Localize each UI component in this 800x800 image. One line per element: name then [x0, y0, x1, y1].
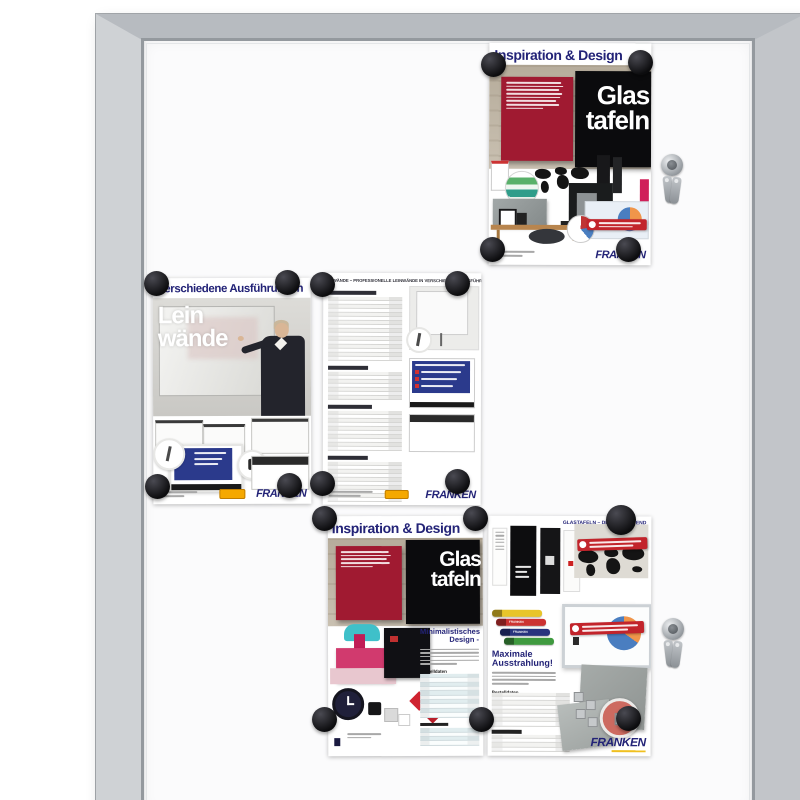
magnet — [445, 271, 470, 296]
map-blob — [571, 167, 589, 179]
map-blob — [557, 175, 569, 189]
beanbag — [529, 229, 565, 244]
magnet-cube — [588, 717, 598, 727]
text-line — [495, 549, 504, 550]
headline-word: wände — [158, 327, 228, 350]
cam-lock — [662, 618, 684, 640]
magnet-cube — [586, 700, 596, 710]
bullet-square — [415, 370, 419, 374]
accessory-table — [492, 735, 570, 752]
magnet — [616, 706, 641, 731]
headline-word: tafeln — [328, 570, 481, 590]
magnet — [606, 505, 636, 535]
magnet — [312, 707, 337, 732]
logo-mark — [334, 738, 340, 746]
marker-cap — [504, 638, 514, 645]
magnet — [481, 52, 506, 77]
table-row — [328, 447, 402, 451]
text-line — [329, 495, 361, 497]
order-table — [420, 674, 479, 718]
planner-strip — [613, 157, 622, 193]
table-row — [420, 741, 479, 746]
banner-text-line — [589, 544, 633, 547]
pole-detail — [166, 446, 172, 461]
text-line — [492, 675, 556, 677]
address-block — [329, 491, 373, 499]
map-blob — [578, 550, 598, 563]
text-line — [495, 538, 504, 539]
price-table — [328, 297, 402, 361]
magnet — [145, 474, 170, 499]
slide-screen — [409, 358, 475, 408]
alert-icon — [572, 625, 579, 632]
notice-board-frame: Inspiration & Design Glas tafeln — [96, 14, 800, 800]
red-chip — [568, 561, 573, 566]
paragraph — [420, 648, 479, 664]
planner-strip-black — [510, 526, 536, 596]
table-header-bar — [328, 366, 368, 370]
magnet — [616, 237, 641, 262]
marker-set: FRANKEN FRANKEN — [492, 610, 554, 648]
text-line — [515, 576, 529, 578]
map-blob — [555, 167, 567, 175]
detail-magnifier — [153, 438, 185, 470]
table-header-bar — [328, 405, 372, 409]
marker-red: FRANKEN — [496, 619, 546, 626]
magnet — [144, 271, 169, 296]
price-table — [328, 411, 402, 451]
poster-headline: Lein wände — [158, 304, 228, 350]
banner-text-line — [589, 540, 641, 543]
table-row — [328, 357, 402, 361]
whiteboard — [562, 604, 652, 668]
screen-photo — [409, 286, 479, 350]
pole-detail — [416, 333, 421, 346]
paragraph — [492, 672, 556, 687]
slide-text-line — [421, 378, 457, 380]
cam-lock — [661, 154, 683, 176]
text-line — [420, 656, 479, 658]
alert-icon — [589, 221, 596, 228]
presenter-head — [275, 323, 289, 338]
magnet — [310, 272, 335, 297]
wall-screen — [251, 418, 309, 454]
poster-headline: Glas tafeln — [489, 83, 650, 134]
picture-frame — [517, 213, 527, 225]
slide-title-line — [415, 364, 465, 366]
presenter-body — [261, 336, 305, 416]
poster-title: Inspiration & Design — [328, 516, 483, 538]
map-blob — [632, 566, 642, 572]
black-square-board — [368, 702, 381, 715]
screen-top-bar — [252, 457, 308, 465]
text-line — [420, 648, 479, 650]
banner-text-line — [582, 628, 628, 631]
slide-text-line — [194, 463, 218, 465]
text-line — [495, 532, 504, 533]
magnet — [277, 473, 302, 498]
keyhole — [667, 160, 677, 170]
magnet — [312, 506, 337, 531]
section-heading: Maximale Ausstrahlung! — [492, 650, 564, 669]
text-line — [329, 491, 373, 493]
map-blob — [606, 558, 620, 574]
text-line — [492, 683, 529, 685]
table-header-bar — [492, 730, 522, 734]
headline-word: tafeln — [489, 108, 650, 134]
red-banner — [570, 621, 644, 635]
section-heading: Minimalistisches Design - — [420, 628, 479, 645]
red-banner — [587, 219, 647, 230]
planner-strip-black — [540, 528, 560, 594]
publisher-mark — [334, 733, 382, 751]
magnet — [469, 707, 494, 732]
text-line — [348, 737, 372, 739]
table-row — [492, 747, 570, 751]
bullet-square — [415, 384, 419, 388]
product-image-column — [409, 286, 477, 452]
bullet-square — [415, 377, 419, 381]
text-line — [492, 679, 556, 681]
wall-clock — [332, 688, 364, 720]
gray-square-board — [384, 708, 398, 722]
magnet — [445, 469, 470, 494]
slide-text-line — [421, 371, 461, 373]
marker-cap — [492, 610, 502, 617]
magnet — [275, 270, 300, 295]
note-tag — [390, 636, 398, 642]
roller-screen — [409, 414, 475, 452]
promo-badge — [219, 489, 245, 499]
text-line — [515, 571, 527, 573]
banner-text-line — [599, 222, 641, 224]
magnet — [310, 471, 335, 496]
alert-icon — [579, 541, 586, 548]
map-blob — [541, 181, 549, 193]
marker-blue: FRANKEN — [500, 629, 550, 636]
screen-top-bar — [252, 419, 308, 422]
screen-top-bar — [410, 415, 474, 422]
marker-label: FRANKEN — [513, 630, 528, 634]
table-header-bar — [328, 291, 376, 295]
text-line — [495, 542, 504, 543]
planner-strip-white — [492, 528, 507, 586]
text-line — [348, 733, 382, 735]
text-line — [420, 663, 457, 665]
franken-logo-block: FRANKEN — [590, 735, 645, 752]
magnet-cube — [574, 692, 584, 702]
magnet — [480, 237, 505, 262]
logo-underline — [612, 750, 646, 752]
banner-text-line — [582, 624, 638, 627]
table-row — [492, 722, 570, 726]
table-header-bar — [328, 456, 368, 460]
marker-cap — [500, 629, 510, 636]
poster-leinwaende-hero: Verschiedene Ausführungen Lein wände — [153, 278, 312, 505]
red-banner — [577, 537, 647, 551]
accessory-table — [420, 728, 479, 746]
table-header-bar — [420, 723, 448, 727]
presenter-hand — [238, 336, 244, 341]
photo-chip — [545, 556, 554, 565]
poster-headline: Glas tafeln — [328, 550, 481, 590]
franken-logo: FRANKEN — [590, 735, 645, 749]
map-blob — [586, 564, 595, 576]
price-table-column — [328, 286, 403, 502]
text-column: Minimalistisches Design - Bestelldaten — [420, 628, 479, 746]
slide-title-line — [194, 452, 226, 454]
table-row — [328, 396, 402, 400]
poster-glastafeln-top: Inspiration & Design Glas tafeln — [489, 43, 652, 266]
magnet — [628, 50, 653, 75]
marker-cap — [496, 619, 506, 626]
magnet — [463, 506, 488, 531]
banner-text-line — [599, 226, 633, 228]
text-line — [420, 652, 479, 654]
text-line — [492, 672, 556, 674]
text-line — [495, 535, 504, 536]
text-line — [420, 659, 479, 661]
marker-green — [504, 638, 554, 645]
poster-glastafeln-bottom: Inspiration & Design Glas tafeln — [328, 516, 484, 756]
marker-yellow — [492, 610, 542, 617]
text-line — [515, 566, 531, 568]
marker-label: FRANKEN — [509, 620, 524, 624]
tripod-pole — [440, 333, 442, 346]
white-square-board — [398, 714, 410, 726]
promo-badge — [385, 490, 409, 499]
detail-magnifier — [406, 327, 432, 353]
slide-text-line — [194, 458, 222, 460]
text-line — [495, 545, 504, 546]
magnet-cube — [576, 709, 586, 719]
board-eraser — [573, 637, 579, 645]
slide — [412, 361, 470, 393]
headline-word: Lein — [158, 304, 228, 327]
product-photo: Inspiration & Design Glas tafeln — [0, 0, 800, 800]
slide-text-line — [421, 385, 453, 387]
keyhole — [668, 624, 678, 634]
price-table — [328, 372, 402, 400]
screen-base — [410, 402, 474, 407]
map-blob — [535, 169, 551, 179]
